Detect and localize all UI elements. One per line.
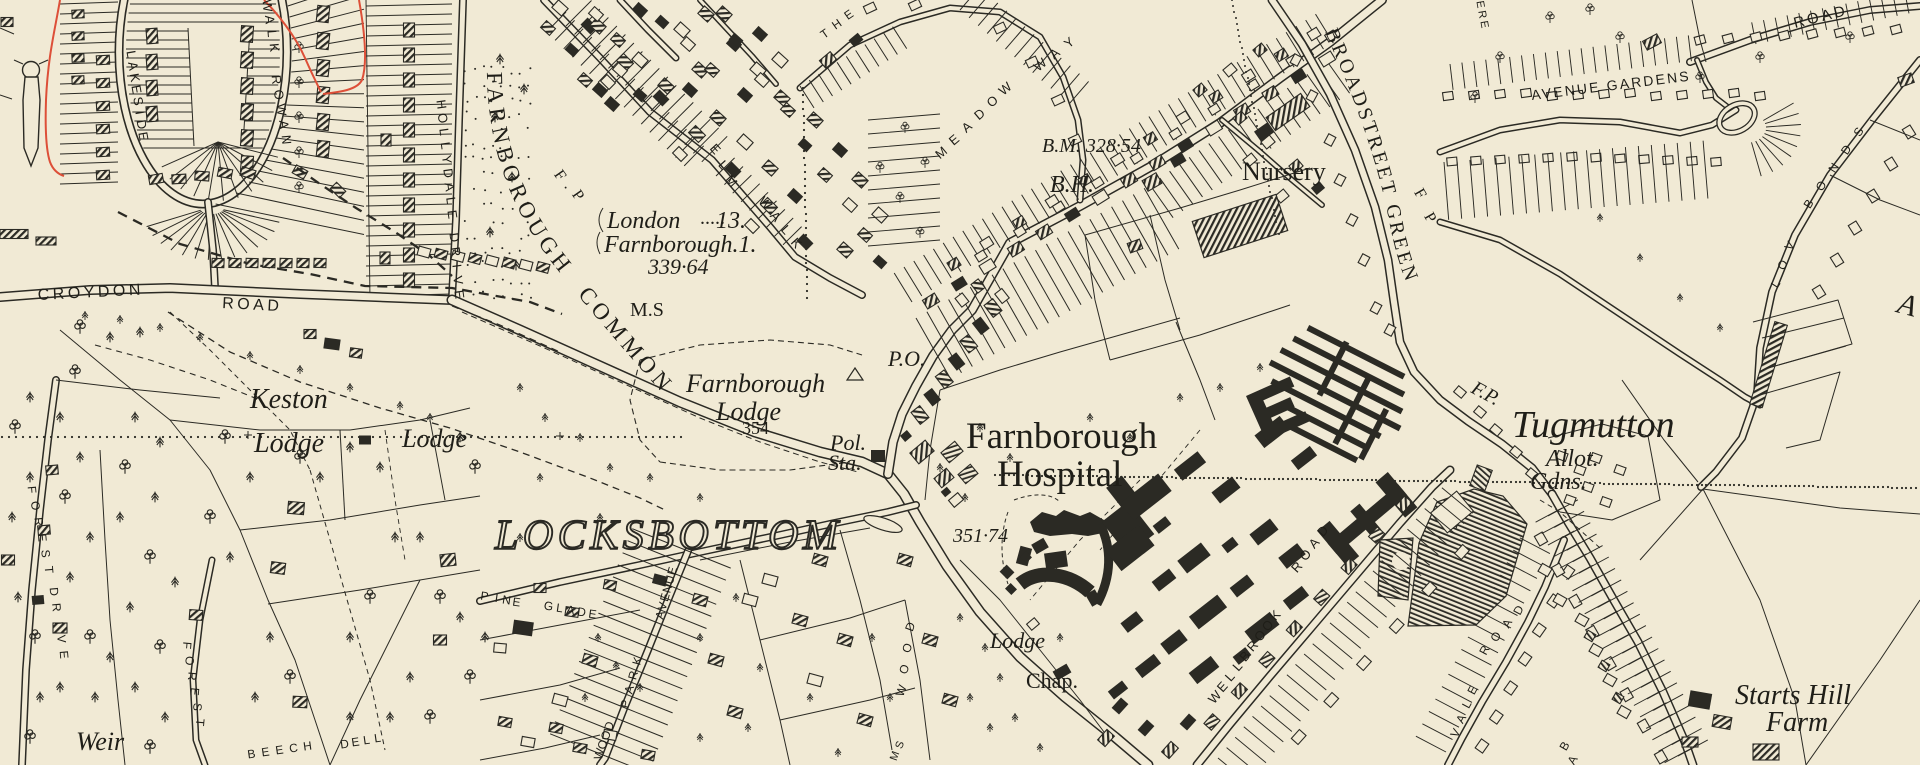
svg-text:W: W xyxy=(273,103,289,117)
svg-text:S: S xyxy=(190,702,205,711)
svg-text:R: R xyxy=(269,74,285,85)
svg-text:354: 354 xyxy=(742,418,769,438)
svg-text:N: N xyxy=(279,134,295,145)
svg-text:A: A xyxy=(262,15,278,25)
svg-text:Hospital: Hospital xyxy=(997,454,1122,495)
svg-text:Farm: Farm xyxy=(1765,707,1828,738)
svg-text:O: O xyxy=(435,112,451,124)
svg-text:Nursery: Nursery xyxy=(1242,157,1326,186)
svg-text:Lodge: Lodge xyxy=(989,628,1045,653)
svg-text:F: F xyxy=(25,485,40,494)
svg-text:Farnborough: Farnborough xyxy=(685,369,825,398)
svg-text:O: O xyxy=(271,89,287,100)
svg-text:Lodge: Lodge xyxy=(401,424,467,453)
svg-text:Tugmutton: Tugmutton xyxy=(1512,404,1675,446)
svg-text:Gdns.: Gdns. xyxy=(1530,469,1587,495)
svg-text:O: O xyxy=(182,655,197,666)
svg-text:V: V xyxy=(54,634,69,643)
svg-text:London: London xyxy=(606,208,680,234)
svg-text:Sta.: Sta. xyxy=(828,450,862,475)
svg-text:B.M. 328·54: B.M. 328·54 xyxy=(1042,135,1141,157)
svg-text:ROAD: ROAD xyxy=(222,295,283,315)
svg-text:A: A xyxy=(276,120,292,130)
svg-text:Weir: Weir xyxy=(76,727,125,756)
svg-text:R: R xyxy=(185,671,200,681)
svg-text:339·64: 339·64 xyxy=(647,254,709,279)
svg-text:Farnborough: Farnborough xyxy=(966,416,1158,457)
svg-text:L: L xyxy=(264,29,280,38)
svg-text:F: F xyxy=(180,641,195,650)
svg-text:E: E xyxy=(187,687,202,696)
svg-text:D: D xyxy=(47,587,62,597)
svg-text:K: K xyxy=(267,43,283,53)
svg-text:G: G xyxy=(543,598,554,613)
svg-text:Chap.: Chap. xyxy=(1026,668,1078,693)
svg-text:E: E xyxy=(35,533,50,542)
svg-text:Lodge: Lodge xyxy=(253,428,324,459)
svg-text:B.H.: B.H. xyxy=(1050,172,1094,198)
svg-text:R: R xyxy=(31,517,46,527)
svg-text:O: O xyxy=(28,500,43,511)
svg-text:LOCKSBOTTOM: LOCKSBOTTOM xyxy=(494,513,842,559)
svg-text:E: E xyxy=(57,650,72,659)
svg-text:13.: 13. xyxy=(716,208,746,234)
svg-text:W: W xyxy=(259,0,275,13)
svg-text:P.O.: P.O. xyxy=(887,346,926,371)
svg-text:R: R xyxy=(49,602,64,612)
svg-text:Keston: Keston xyxy=(249,384,328,415)
svg-text:S: S xyxy=(38,549,53,558)
svg-text:M.S: M.S xyxy=(630,299,664,321)
svg-text:351·74: 351·74 xyxy=(952,525,1008,547)
